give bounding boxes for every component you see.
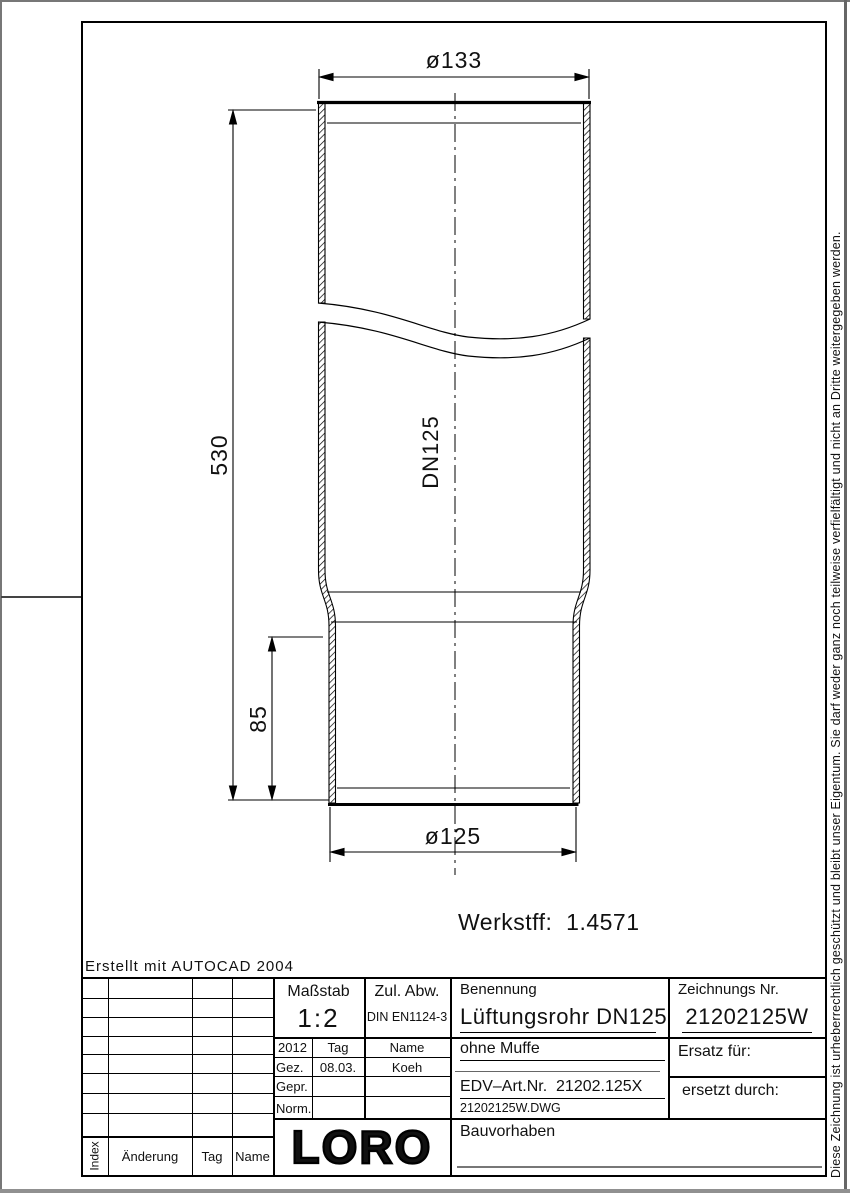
title-block: Maßstab 1:2 Zul. Abw. DIN EN1124-3 2012 … [82,977,825,1175]
approval-year: 2012 [273,1040,312,1055]
copyright-note: Diese Zeichnung ist urheberrechtlich ges… [826,20,846,1178]
replacement-for-label: Ersatz für: [678,1043,751,1061]
drawing-no-value: 21202125W [682,1004,812,1033]
pipe-walls [319,103,591,803]
dim-bottom-diameter: ø125 [330,807,576,862]
rev-header-name: Name [232,1149,273,1164]
pipe-wall-left-lower [319,322,336,803]
logo-cell: LORO [273,1118,450,1175]
designation-sub: ohne Muffe [460,1040,665,1061]
rev-header-change: Änderung [108,1149,192,1164]
tolerance-value: DIN EN1124-3 [364,1010,450,1024]
dim-spigot-height: 85 [245,637,323,799]
dim-spigot-height-label: 85 [245,705,271,733]
material-note: Werkstff: 1.4571 [458,909,640,935]
approval-col-day: Tag [312,1040,364,1055]
designation-value: Lüftungsrohr DN125 [460,1004,656,1033]
row-drawn-name: Koeh [364,1060,450,1075]
project-underline [457,1166,822,1168]
scale-label: Maßstab [273,983,364,1001]
rev-header-index-cell: Index [82,1136,108,1175]
row-standard-label: Norm. [276,1101,311,1116]
project-label: Bauvorhaben [460,1123,555,1141]
rev-header-day: Tag [192,1149,232,1164]
loro-logo: LORO [277,1120,447,1174]
dim-top-diameter: ø133 [319,47,589,99]
row-drawn-label: Gez. [276,1060,303,1075]
pipe-edges [317,103,591,805]
pipe-size-label: DN125 [418,415,443,488]
scale-value: 1:2 [273,1003,364,1034]
row-checked-label: Gepr. [276,1079,308,1094]
drawing-sheet: ø133 530 85 ø125 DN12 [0,0,850,1200]
designation-label: Benennung [460,981,537,998]
approval-col-name: Name [364,1040,450,1055]
empty-field-underline [455,1071,660,1072]
dim-bottom-diameter-label: ø125 [425,823,481,849]
dim-top-diameter-label: ø133 [426,47,482,73]
file-name: 21202125W.DWG [460,1101,561,1115]
pipe-wall-right-lower [573,338,590,803]
drawing-no-label: Zeichnungs Nr. [678,981,779,998]
loro-logo-text: LORO [291,1121,432,1173]
tolerance-label: Zul. Abw. [364,983,450,1001]
autocad-note: Erstellt mit AUTOCAD 2004 [85,958,294,975]
dim-total-height: 530 [206,110,329,800]
replaced-by-label: ersetzt durch: [682,1082,779,1100]
row-drawn-day: 08.03. [312,1060,364,1075]
edv-art-nr: EDV–Art.Nr. 21202.125X [460,1078,665,1099]
pipe-break-lines [318,303,590,358]
pipe-wall-right-upper [584,103,591,319]
dim-total-height-label: 530 [206,434,232,475]
pipe-wall-left-upper [319,103,326,303]
rev-header-index: Index [88,1141,102,1170]
